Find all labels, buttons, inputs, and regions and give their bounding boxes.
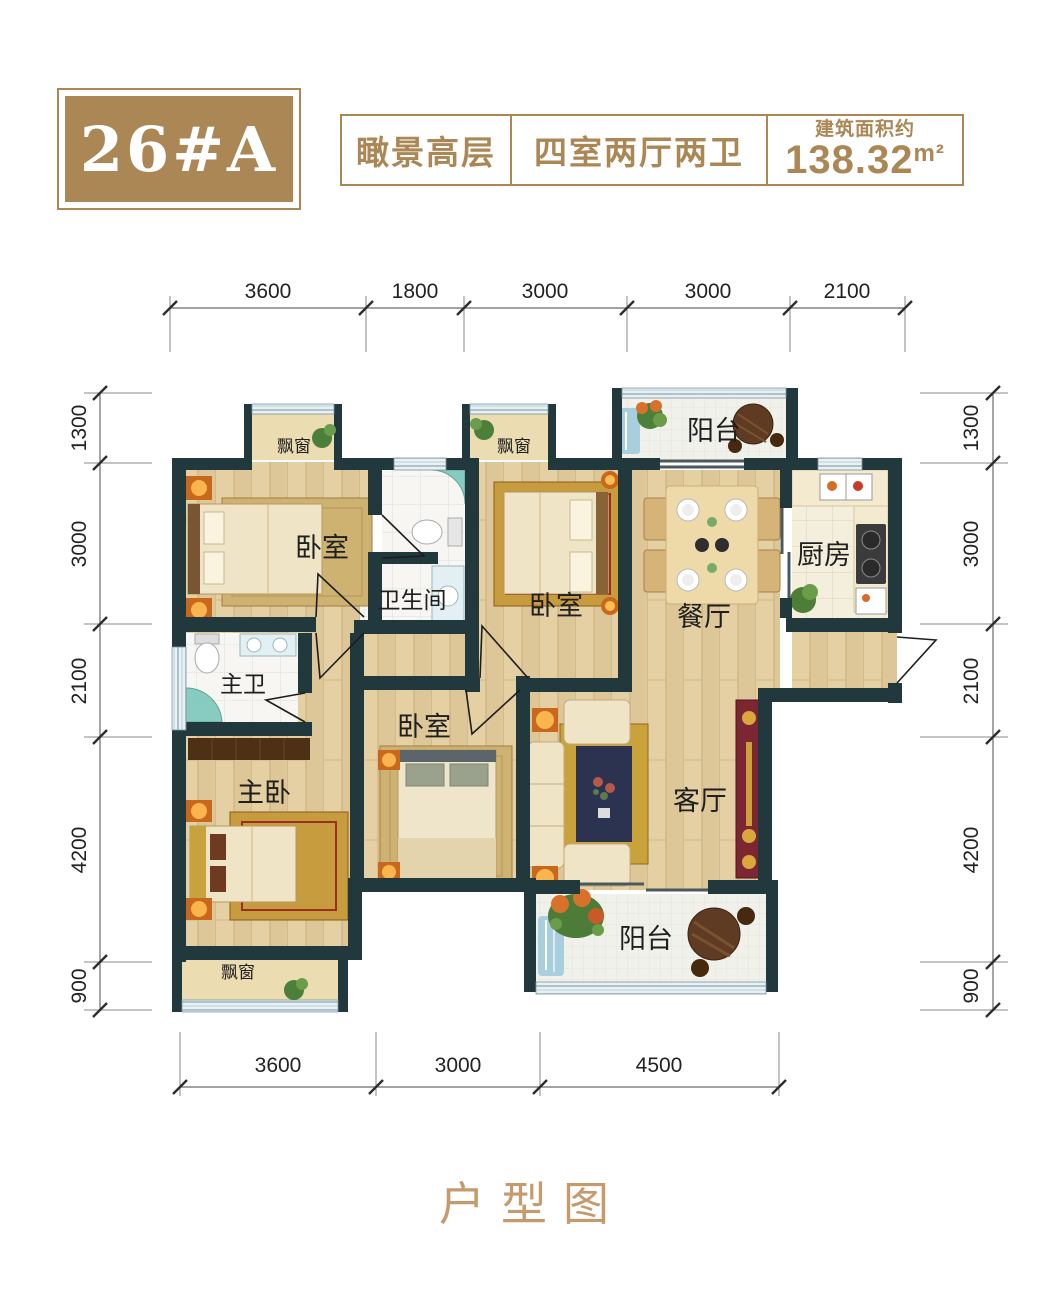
dimensions-bottom: 3600 3000 4500	[173, 1032, 786, 1096]
bay-window1-label: 飘窗	[277, 437, 311, 456]
dim-right-5: 900	[960, 968, 983, 1003]
dim-top-3: 3000	[522, 280, 569, 303]
dimensions-right: 1300 3000 2100 4200 900	[920, 386, 1008, 1017]
bedroom1-label: 卧室	[295, 533, 349, 563]
dim-top-1: 3600	[245, 280, 292, 303]
balcony-bottom-label: 阳台	[619, 924, 673, 954]
kitchen-label: 厨房	[797, 540, 851, 570]
dim-left-2: 3000	[68, 521, 91, 568]
dim-top-4: 3000	[685, 280, 732, 303]
bathroom-label: 卫生间	[378, 587, 447, 613]
page-caption: 户型图	[0, 1168, 1064, 1234]
dim-top-5: 2100	[824, 280, 871, 303]
dimensions-left: 1300 3000 2100 4200 900	[68, 386, 152, 1017]
master-bedroom-label: 主卧	[237, 778, 291, 808]
bay-window3-label: 飘窗	[221, 963, 255, 982]
dim-left-1: 1300	[68, 405, 91, 452]
dim-right-4: 4200	[960, 827, 983, 874]
dim-left-4: 4200	[68, 827, 91, 874]
entry-door	[897, 637, 936, 683]
balcony-top-label: 阳台	[687, 416, 741, 446]
floorplan-drawing: 卧室 卫生间 卧室 阳台 餐厅 厨房 主卫 主卧 卧室 客厅 阳台 飘窗 飘窗 …	[0, 0, 1064, 1300]
dim-bottom-2: 3000	[435, 1054, 482, 1077]
dim-right-2: 3000	[960, 521, 983, 568]
bedroom3-furniture	[378, 746, 512, 886]
bedroom2-label: 卧室	[529, 591, 583, 621]
bay-window2-label: 飘窗	[497, 437, 531, 456]
dimensions-top: 3600 1800 3000 3000 2100	[163, 280, 912, 352]
dim-top-2: 1800	[392, 280, 439, 303]
dim-left-5: 900	[68, 968, 91, 1003]
living-label: 客厅	[673, 786, 727, 816]
dining-label: 餐厅	[677, 602, 731, 632]
bedroom3-label: 卧室	[397, 712, 451, 742]
dim-right-1: 1300	[960, 405, 983, 452]
floorplan-page: 26#A 瞰景高层 四室两厅两卫 建筑面积约 138.32m²	[0, 0, 1064, 1300]
dim-bottom-1: 3600	[255, 1054, 302, 1077]
dim-right-3: 2100	[960, 658, 983, 705]
dim-left-3: 2100	[68, 658, 91, 705]
master-bath-label: 主卫	[220, 671, 266, 697]
dim-bottom-3: 4500	[636, 1054, 683, 1077]
